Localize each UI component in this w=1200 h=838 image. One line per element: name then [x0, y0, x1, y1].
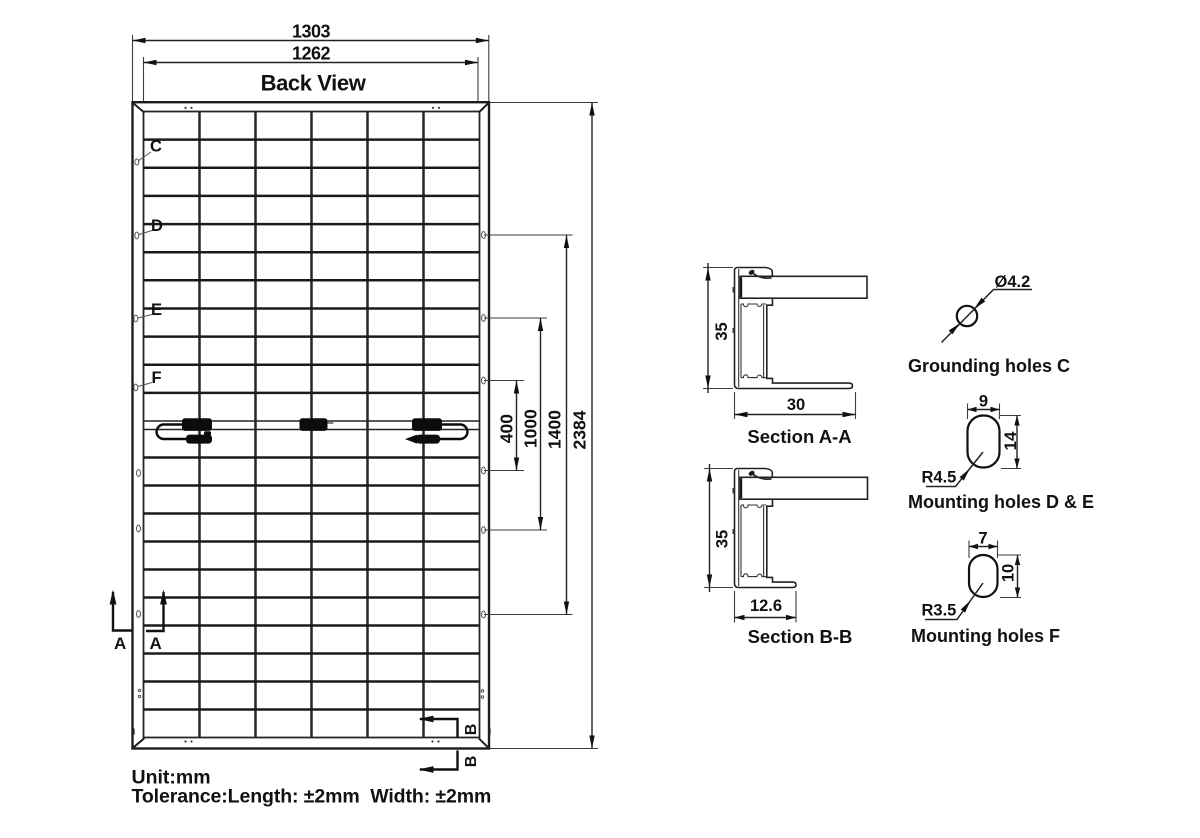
svg-text:Back View: Back View	[261, 71, 367, 96]
svg-text:12.6: 12.6	[750, 597, 782, 615]
svg-text:1262: 1262	[292, 44, 331, 64]
svg-text:D: D	[151, 217, 163, 235]
svg-text:Mounting holes F: Mounting holes F	[911, 626, 1060, 646]
svg-text:30: 30	[787, 396, 805, 414]
svg-text:Section A-A: Section A-A	[747, 426, 851, 447]
svg-text:Ø4.2: Ø4.2	[995, 273, 1031, 291]
svg-text:A: A	[114, 634, 126, 653]
svg-text:1303: 1303	[292, 22, 331, 42]
svg-text:F: F	[152, 369, 162, 387]
svg-text:Section B-B: Section B-B	[748, 626, 853, 647]
svg-text:R4.5: R4.5	[922, 469, 957, 487]
svg-text:35: 35	[714, 530, 732, 548]
svg-text:1000: 1000	[521, 409, 541, 448]
svg-text:C: C	[150, 138, 162, 156]
svg-text:E: E	[151, 301, 162, 319]
svg-text:R3.5: R3.5	[922, 602, 957, 620]
svg-text:B: B	[463, 756, 480, 768]
svg-text:Mounting holes D & E: Mounting holes D & E	[908, 492, 1094, 512]
svg-text:1400: 1400	[545, 410, 565, 449]
svg-text:A: A	[150, 634, 162, 653]
svg-text:Grounding holes C: Grounding holes C	[908, 356, 1070, 376]
svg-text:B: B	[463, 724, 480, 736]
svg-text:9: 9	[979, 393, 988, 411]
svg-text:Tolerance:Length: ±2mm Width:: Tolerance:Length: ±2mm Width: ±2mm	[132, 786, 492, 808]
svg-text:7: 7	[978, 530, 987, 548]
svg-text:10: 10	[1000, 564, 1018, 582]
svg-text:2384: 2384	[570, 410, 590, 449]
svg-text:35: 35	[713, 322, 731, 340]
svg-text:400: 400	[497, 414, 517, 443]
svg-text:14: 14	[1001, 431, 1020, 450]
